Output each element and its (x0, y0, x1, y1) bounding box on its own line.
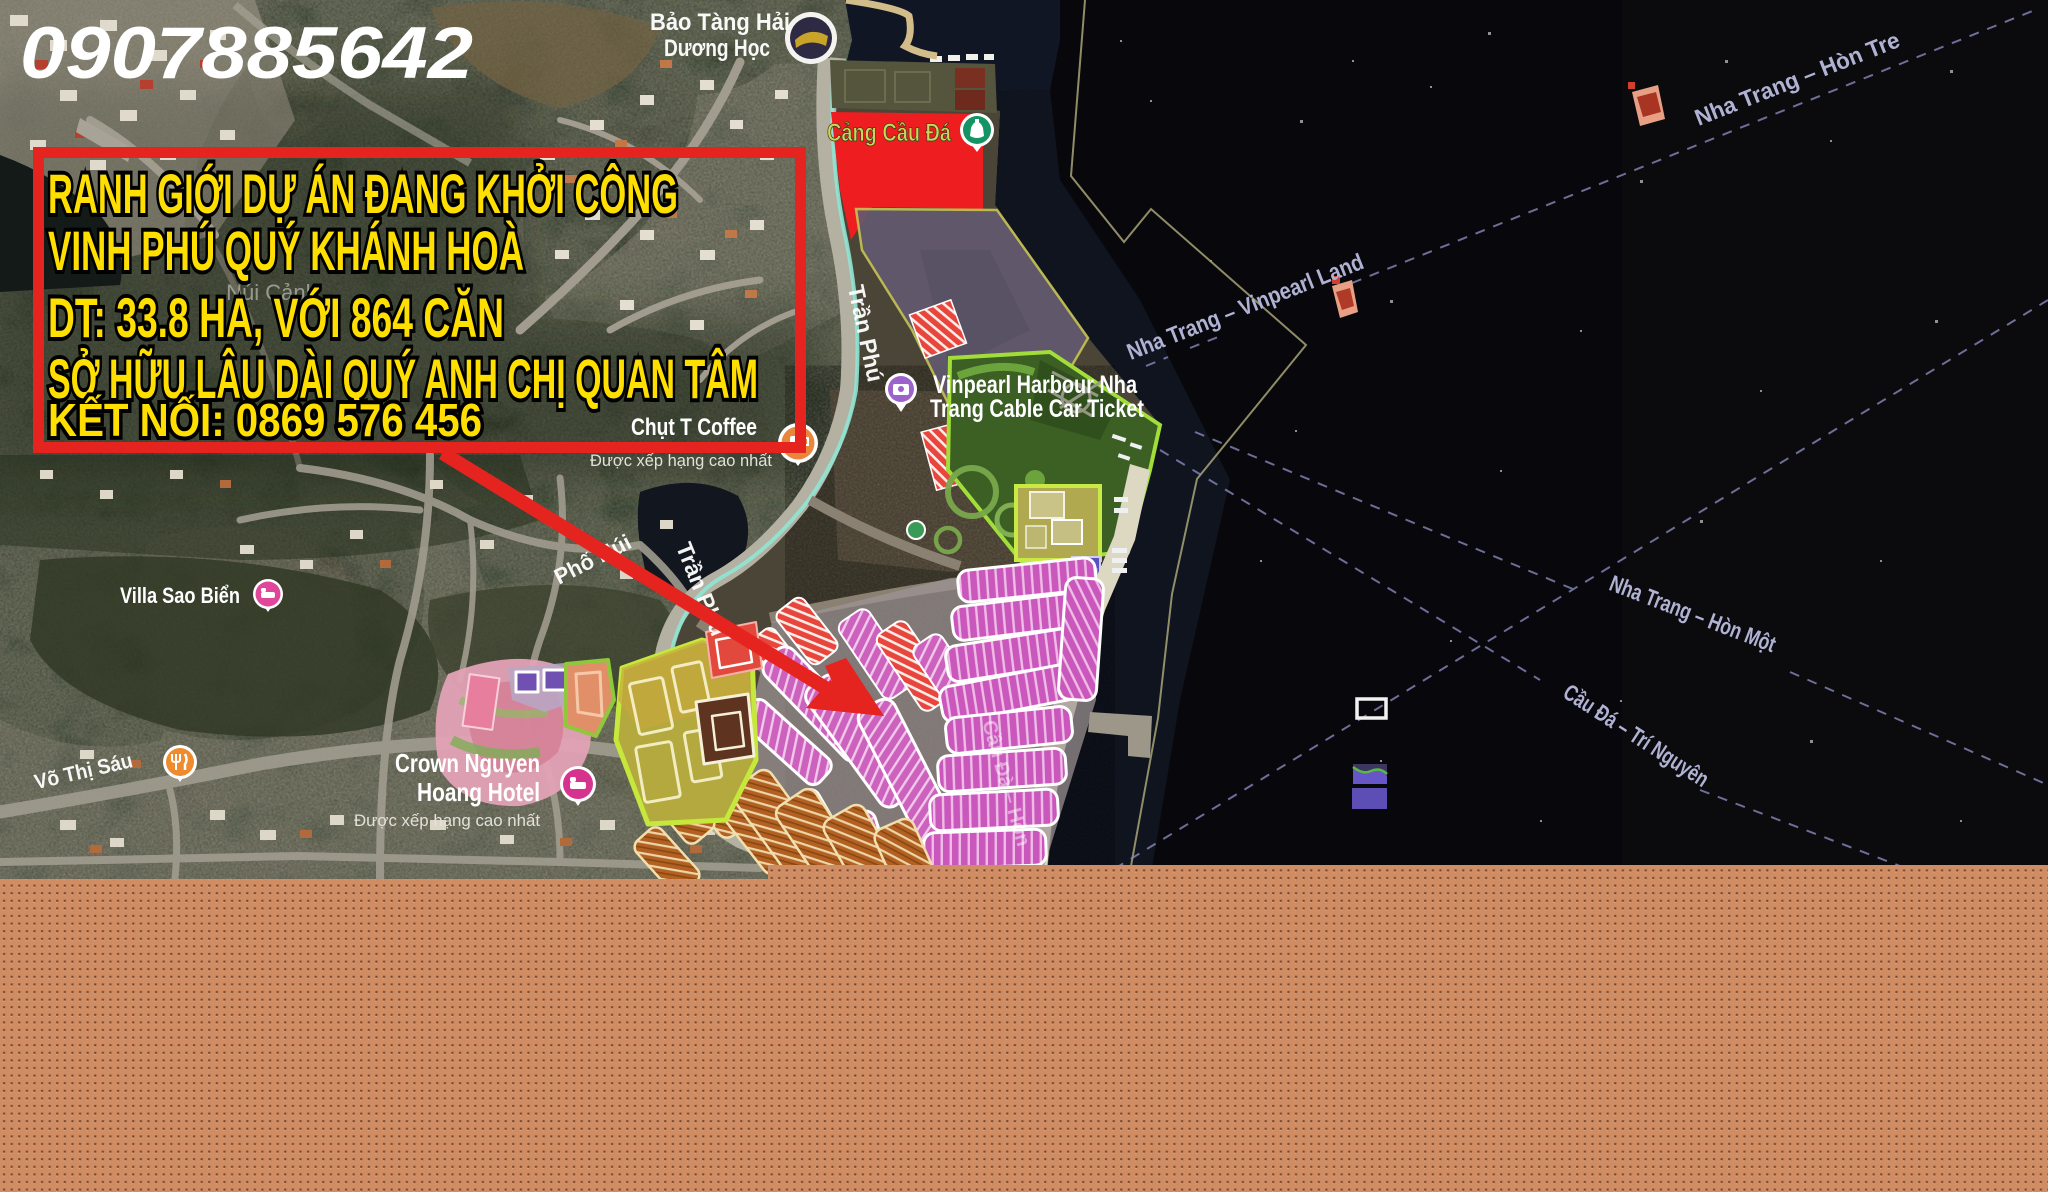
svg-text:Bảo Tàng Hải: Bảo Tàng Hải (650, 9, 790, 36)
svg-text:Được xếp hạng cao nhất: Được xếp hạng cao nhất (354, 811, 540, 830)
svg-text:Được xếp hạng cao nhất: Được xếp hạng cao nhất (590, 451, 772, 470)
svg-text:RANH GIỚI DỰ ÁN ĐANG KHỞI CÔNG: RANH GIỚI DỰ ÁN ĐANG KHỞI CÔNG (48, 162, 678, 225)
svg-text:DT: 33.8 HA, VỚI 864 CĂN: DT: 33.8 HA, VỚI 864 CĂN (48, 286, 504, 349)
svg-text:Cảng Cầu Đá: Cảng Cầu Đá (827, 119, 951, 147)
svg-text:VINH PHÚ QUÝ KHÁNH HOÀ: VINH PHÚ QUÝ KHÁNH HOÀ (48, 219, 524, 282)
svg-text:Hoang Hotel: Hoang Hotel (417, 777, 540, 807)
svg-text:Dương Học: Dương Học (664, 35, 770, 62)
svg-text:KẾT NỐI: 0869 576 456: KẾT NỐI: 0869 576 456 (48, 394, 482, 446)
svg-text:0907885642: 0907885642 (20, 13, 473, 94)
svg-text:Trang Cable Car Ticket: Trang Cable Car Ticket (930, 395, 1145, 423)
svg-text:Chụt T Coffee: Chụt T Coffee (631, 414, 757, 441)
svg-text:Crown Nguyen: Crown Nguyen (395, 748, 540, 778)
svg-text:Villa Sao Biển: Villa Sao Biển (120, 583, 240, 608)
